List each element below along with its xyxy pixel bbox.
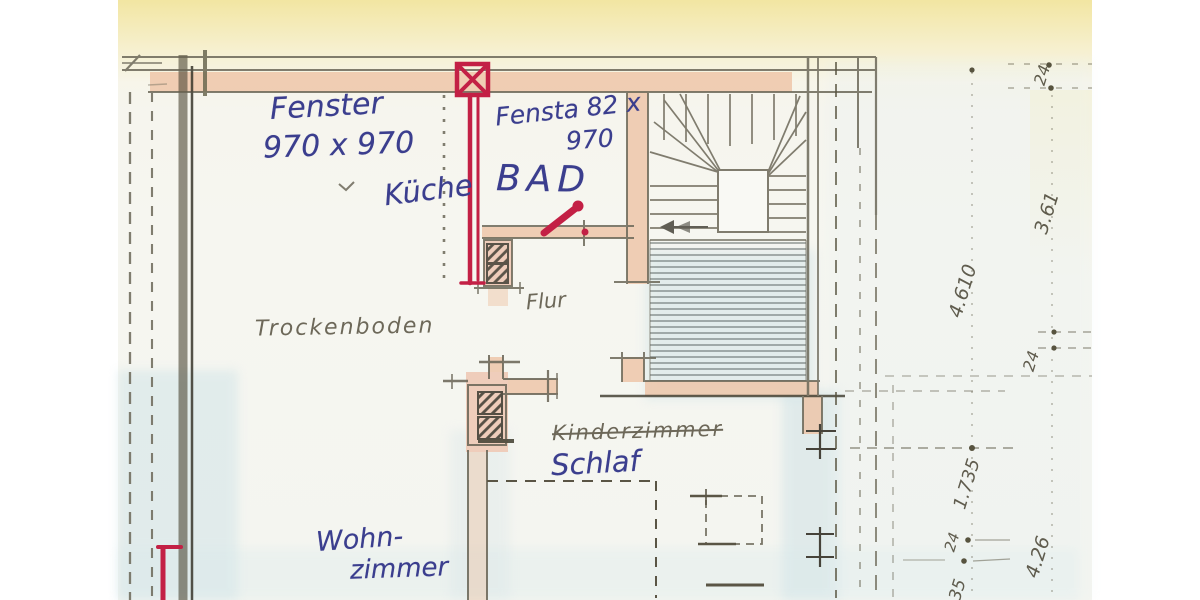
- floorplan-linework: [0, 0, 1200, 600]
- red-corner-mark: [158, 545, 181, 600]
- stair-flight-hatch: [650, 240, 806, 381]
- room-label-kinderzimmer-struck: Kinderzimmer: [552, 419, 724, 444]
- dashed-partitions: [487, 481, 764, 598]
- floorplan-scan: Fenster 970 x 970 Fensta 82 x 970 Küche …: [0, 0, 1200, 600]
- window-size-1: 970 x 970: [263, 128, 415, 163]
- window-size-2: 970: [565, 125, 614, 153]
- room-label-trockenboden: Trockenboden: [255, 315, 435, 340]
- room-label-flur: Flur: [525, 290, 566, 314]
- winder-stairs: [650, 94, 806, 234]
- wall-end-ticks: [806, 424, 836, 567]
- room-label-wohnzimmer-1: Wohn-: [315, 523, 404, 556]
- window-label-1: Fenster: [269, 89, 383, 125]
- room-label-schlaf: Schlaf: [550, 447, 640, 481]
- room-label-wohnzimmer-2: zimmer: [350, 554, 449, 583]
- room-label-bad: BAD: [496, 161, 592, 199]
